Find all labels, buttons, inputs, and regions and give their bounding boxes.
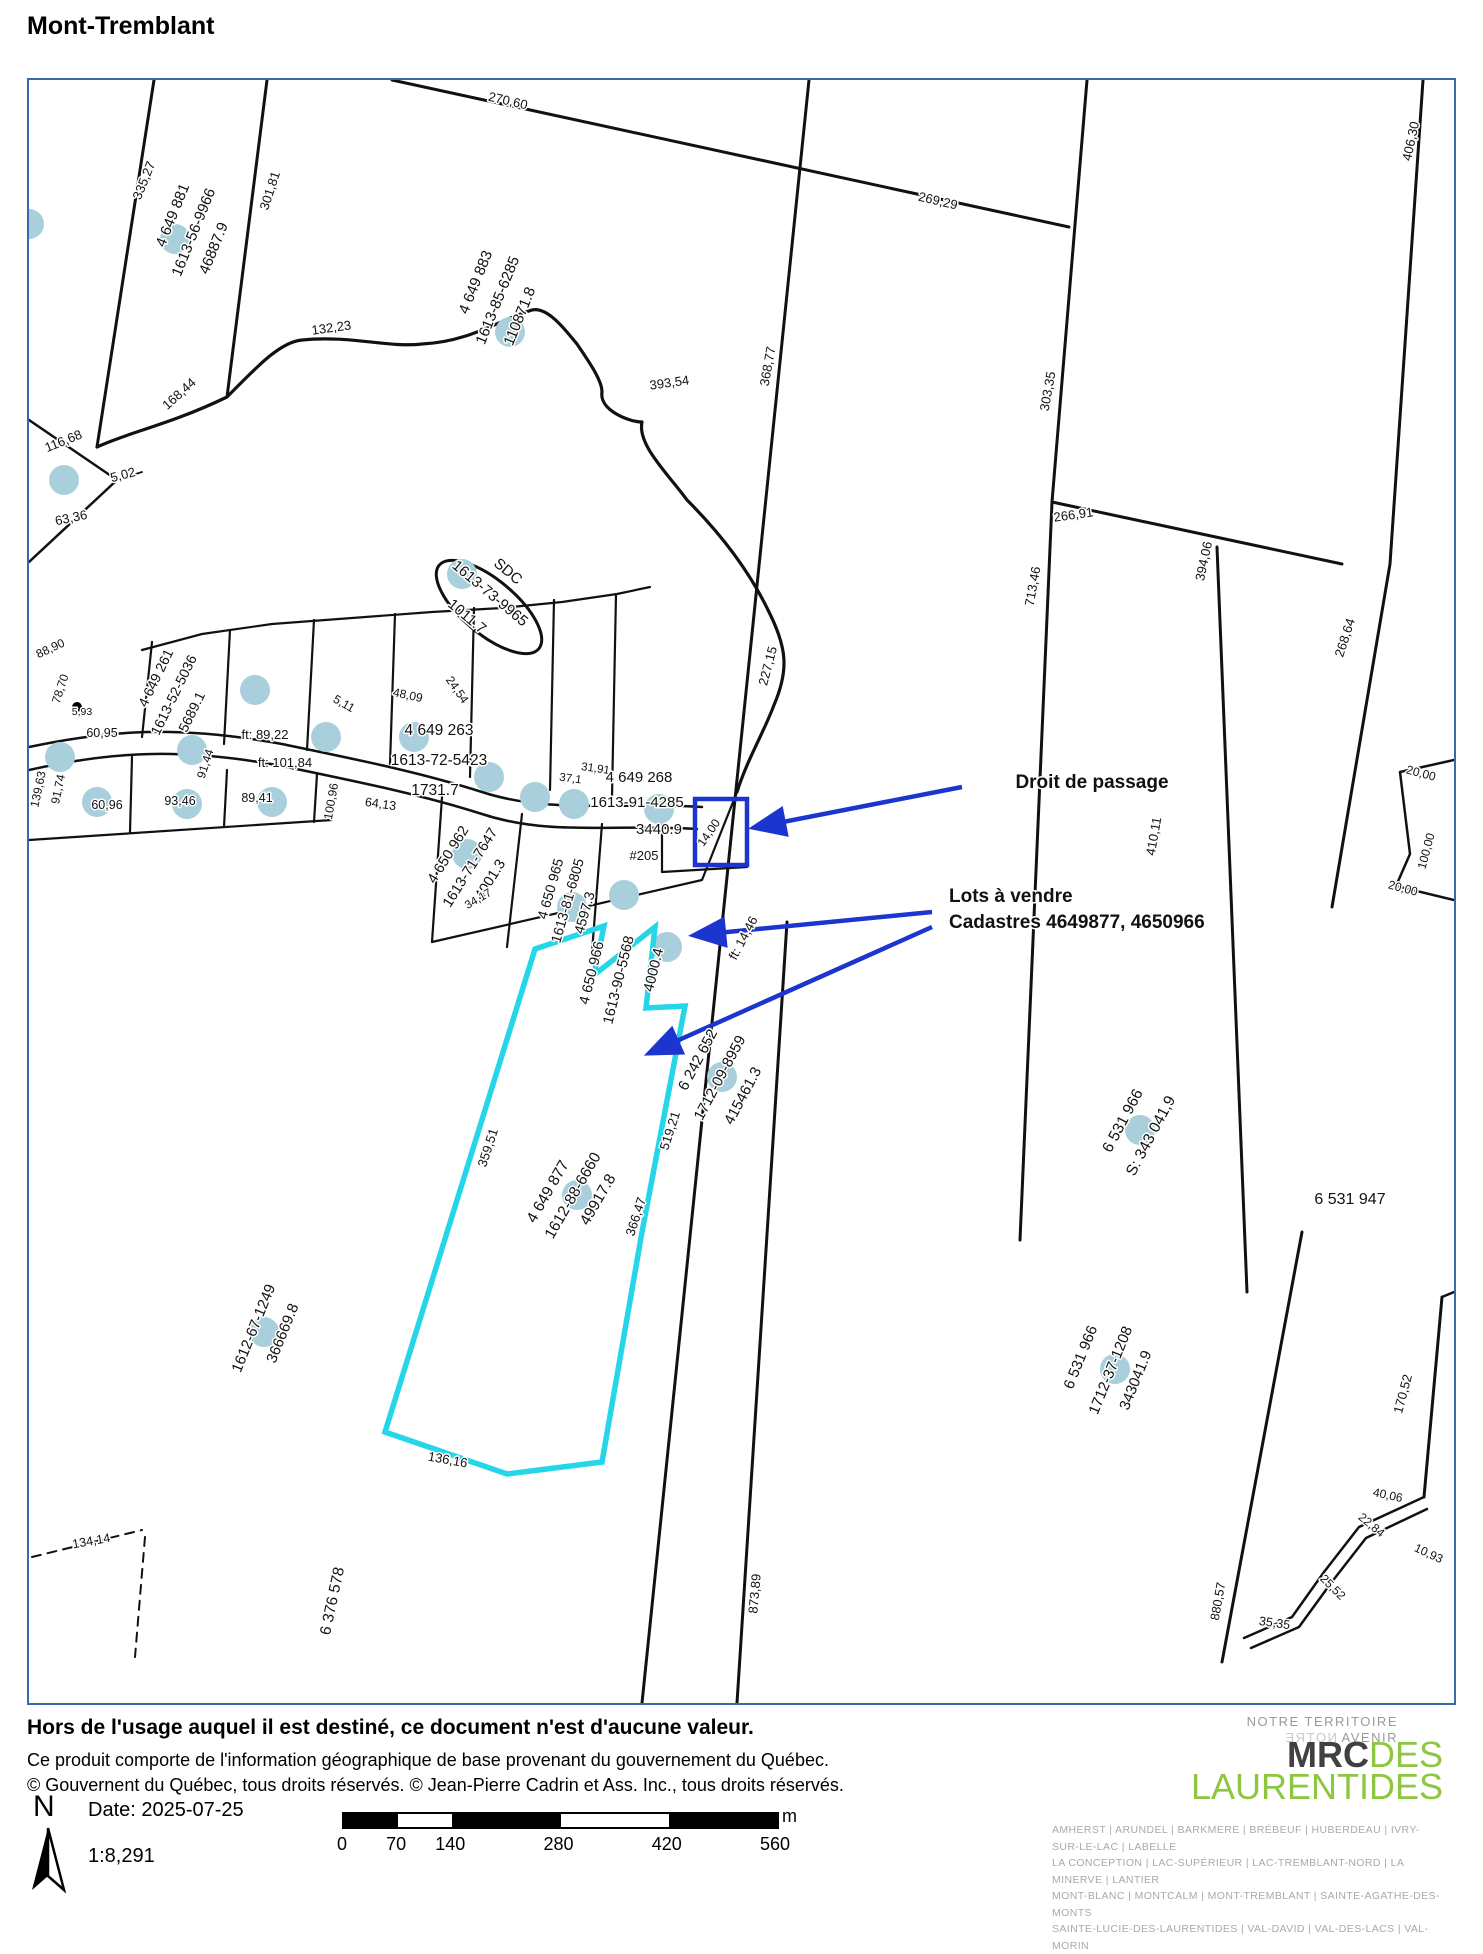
logo-tagline-1: NOTRE TERRITOIRE bbox=[1050, 1714, 1398, 1729]
map-label: 713,46 bbox=[1022, 565, 1044, 607]
scale-tick: 140 bbox=[435, 1834, 465, 1855]
scale-bar-segment bbox=[561, 1814, 669, 1827]
disclaimer-line2: Ce produit comporte de l'information géo… bbox=[27, 1750, 829, 1771]
point-marker bbox=[559, 789, 589, 819]
map-label: 303,35 bbox=[1037, 370, 1059, 412]
map-label: 63,36 bbox=[54, 507, 89, 528]
point-marker bbox=[609, 880, 639, 910]
map-label: 48,09 bbox=[392, 685, 425, 705]
map-label: 40,06 bbox=[1372, 1485, 1405, 1505]
point-marker bbox=[520, 782, 550, 812]
municipality-line: LA CONCEPTION | LAC-SUPÉRIEUR | LAC-TREM… bbox=[1052, 1855, 1444, 1888]
map-label: 3440.9 bbox=[636, 821, 682, 838]
point-marker bbox=[45, 742, 75, 772]
map-label: 136,16 bbox=[427, 1449, 469, 1471]
map-label: 873,89 bbox=[745, 1573, 763, 1614]
map-label: 270,60 bbox=[487, 89, 529, 113]
scale-tick: 70 bbox=[386, 1834, 406, 1855]
map-label: 4 650 966 bbox=[577, 940, 608, 1006]
scale-unit: m bbox=[782, 1806, 797, 1827]
point-marker bbox=[311, 722, 341, 752]
map-label: ft: 101,84 bbox=[258, 755, 312, 770]
map-label: 393,54 bbox=[649, 372, 690, 392]
scale-tick: 280 bbox=[543, 1834, 573, 1855]
map-label: 6 531 966 bbox=[1060, 1323, 1101, 1391]
parcel-lines bbox=[29, 80, 1454, 1703]
map-label: ft: 89,22 bbox=[242, 727, 289, 742]
logo-municipality-list: AMHERST | ARUNDEL | BARKMERE | BRÉBEUF |… bbox=[1052, 1822, 1444, 1954]
map-label: 335,27 bbox=[129, 159, 158, 201]
page-title: Mont-Tremblant bbox=[27, 12, 215, 41]
north-label: N bbox=[33, 1790, 55, 1824]
map-label: 269,29 bbox=[917, 189, 959, 213]
map-date: Date: 2025-07-25 bbox=[88, 1799, 244, 1822]
scale-tick: 420 bbox=[652, 1834, 682, 1855]
map-label: 93,46 bbox=[164, 794, 195, 808]
map-label: 25,52 bbox=[1317, 1572, 1348, 1603]
map-label: 368,77 bbox=[757, 345, 779, 387]
cadastral-map: 335,274 649 8811613-56-996646887.9301,81… bbox=[27, 78, 1456, 1705]
map-label: 139,63 bbox=[29, 769, 49, 808]
map-label: 14,00 bbox=[694, 816, 723, 849]
map-label: SDC bbox=[490, 555, 525, 588]
municipality-line: AMHERST | ARUNDEL | BARKMERE | BRÉBEUF |… bbox=[1052, 1822, 1444, 1855]
map-label: Droit de passage bbox=[1015, 772, 1168, 793]
map-label: 20,00 bbox=[1387, 877, 1420, 898]
scale-tick: 0 bbox=[337, 1834, 347, 1855]
map-scale-ratio: 1:8,291 bbox=[88, 1845, 155, 1868]
map-label: 24,54 bbox=[443, 673, 472, 706]
map-label: 1731.7 bbox=[411, 782, 458, 799]
map-label: 1011.7 bbox=[444, 596, 489, 638]
map-label: 4 649 263 bbox=[405, 722, 474, 739]
point-marker bbox=[49, 465, 79, 495]
map-label: 78,70 bbox=[49, 672, 72, 705]
map-label: 5,02 bbox=[109, 464, 137, 485]
scale-bar-segment bbox=[452, 1814, 560, 1827]
annotation-arrows bbox=[652, 787, 962, 1052]
map-label: 100,00 bbox=[1415, 831, 1438, 870]
municipality-line: SAINTE-LUCIE-DES-LAURENTIDES | VAL-DAVID… bbox=[1052, 1921, 1444, 1954]
map-label: 168,44 bbox=[159, 375, 199, 413]
map-label: 100,96 bbox=[321, 782, 341, 821]
scale-bar-ticks: 070140280420560 bbox=[342, 1834, 775, 1858]
map-label: Cadastres 4649877, 4650966 bbox=[949, 912, 1205, 933]
map-label: 60,96 bbox=[91, 798, 122, 812]
map-label: 268,64 bbox=[1331, 616, 1358, 658]
map-label: 4 649 268 bbox=[606, 769, 673, 786]
point-marker bbox=[240, 675, 270, 705]
map-label: 170,52 bbox=[1390, 1373, 1415, 1415]
map-label: 880,57 bbox=[1208, 1581, 1228, 1621]
map-label: 301,81 bbox=[256, 169, 283, 211]
map-label: 410,11 bbox=[1143, 816, 1165, 857]
map-label: 89,41 bbox=[241, 791, 272, 805]
map-label: 266,91 bbox=[1053, 504, 1094, 524]
disclaimer-line3: © Gouvernent du Québec, tous droits rése… bbox=[27, 1775, 844, 1796]
map-label: 1613-91-4285 bbox=[590, 794, 683, 811]
annotation-arrow bbox=[652, 927, 932, 1052]
logo-brand-line2: LAURENTIDES bbox=[1050, 1770, 1443, 1804]
map-label: 4000.4 bbox=[641, 947, 667, 994]
map-label: 227,15 bbox=[755, 645, 780, 687]
disclaimer-line1: Hors de l'usage auquel il est destiné, c… bbox=[27, 1716, 754, 1740]
map-label: 134,14 bbox=[71, 1531, 111, 1551]
north-arrow-icon bbox=[28, 1826, 68, 1894]
map-label: 116,68 bbox=[43, 427, 85, 455]
annotation-arrow bbox=[697, 912, 932, 935]
scale-bar-segment bbox=[398, 1814, 452, 1827]
map-labels: 335,274 649 8811613-56-996646887.9301,81… bbox=[29, 89, 1446, 1637]
map-label: 5,93 bbox=[72, 706, 93, 718]
map-label: 5,11 bbox=[331, 692, 358, 716]
map-label: 394,06 bbox=[1192, 540, 1215, 582]
annotation-arrow bbox=[757, 787, 962, 827]
scale-bar-segment bbox=[344, 1814, 398, 1827]
scale-bar bbox=[342, 1812, 779, 1829]
map-label: 91,74 bbox=[48, 773, 68, 806]
map-label: 37,1 bbox=[558, 772, 582, 787]
map-label: 88,90 bbox=[34, 636, 67, 662]
map-label: 132,23 bbox=[311, 317, 352, 337]
map-label: 6 376 578 bbox=[317, 1566, 348, 1637]
map-label: #205 bbox=[630, 848, 659, 863]
scale-tick: 560 bbox=[760, 1834, 790, 1855]
map-label: Lots à vendre bbox=[949, 886, 1073, 907]
map-label: ft: 14,46 bbox=[725, 914, 760, 963]
map-label: 60,95 bbox=[86, 726, 117, 740]
map-label: 64,13 bbox=[364, 795, 397, 813]
map-label: 10,93 bbox=[1412, 1541, 1445, 1567]
map-canvas: 335,274 649 8811613-56-996646887.9301,81… bbox=[29, 80, 1454, 1703]
map-label: 1613-72-5423 bbox=[391, 752, 488, 769]
municipality-line: MONT-BLANC | MONTCALM | MONT-TREMBLANT |… bbox=[1052, 1888, 1444, 1921]
scale-bar-segment bbox=[669, 1814, 777, 1827]
point-marker bbox=[29, 209, 44, 239]
map-label: 6 531 947 bbox=[1314, 1191, 1385, 1208]
